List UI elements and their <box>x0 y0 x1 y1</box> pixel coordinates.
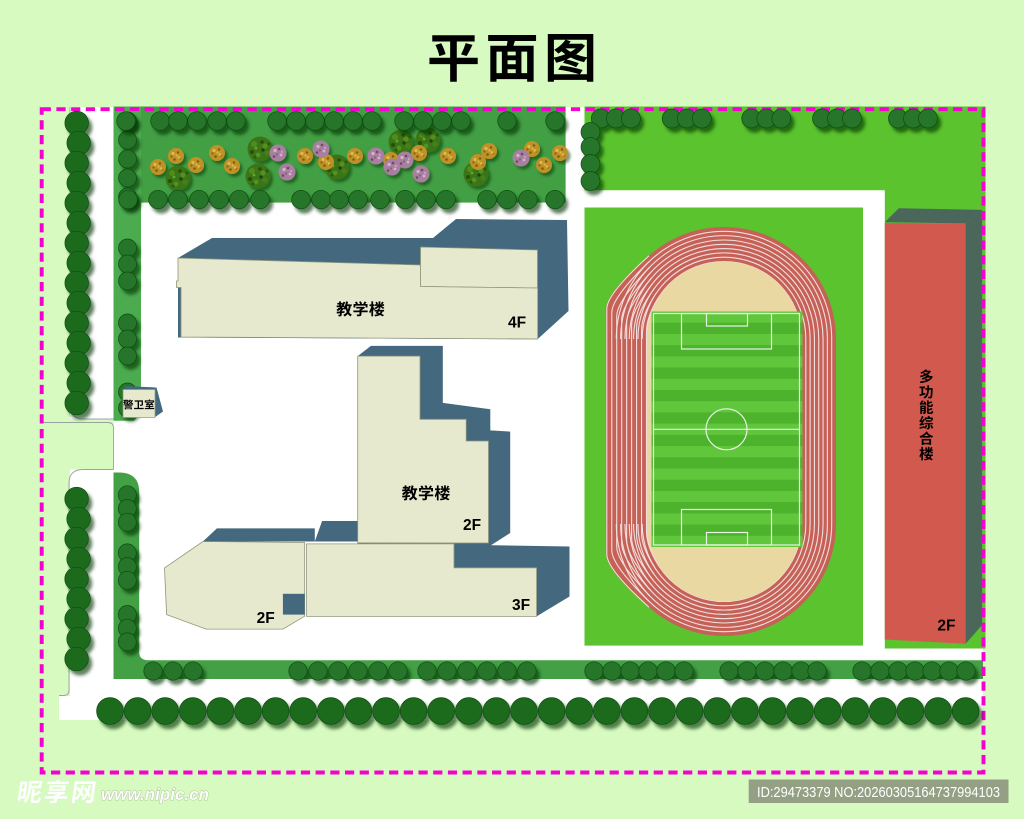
svg-text:2F: 2F <box>257 610 275 627</box>
svg-text:ID:29473379 NO:202603051647379: ID:29473379 NO:20260305164737994103 <box>757 784 1000 801</box>
svg-text:2F: 2F <box>937 618 955 635</box>
svg-text:4F: 4F <box>508 315 526 332</box>
svg-text:3F: 3F <box>512 597 530 614</box>
svg-text:2F: 2F <box>463 517 481 534</box>
svg-text:www.nipic.cn: www.nipic.cn <box>101 785 209 804</box>
